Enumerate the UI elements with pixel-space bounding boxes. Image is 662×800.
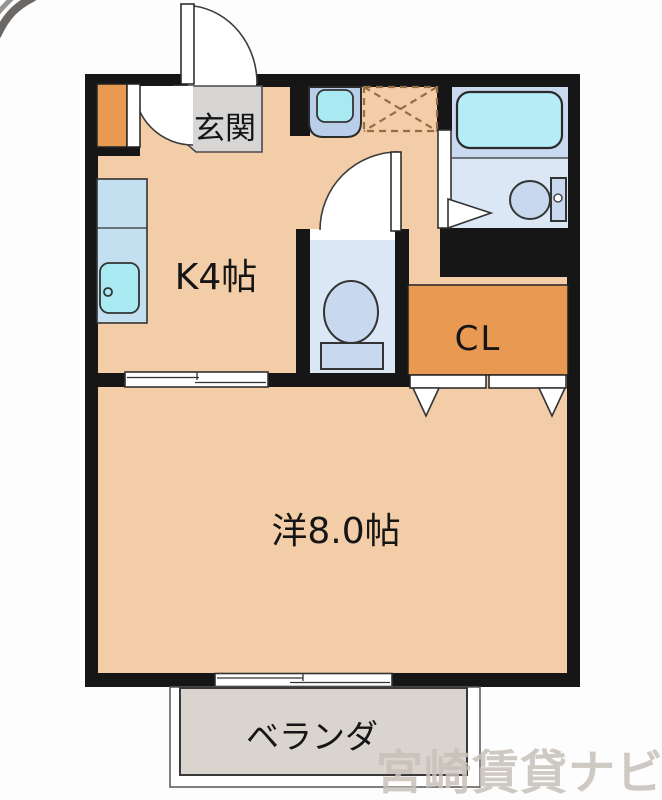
wall-right xyxy=(567,74,580,687)
closet-door-left xyxy=(410,375,486,388)
wc-threshold xyxy=(310,229,395,241)
sliding-door xyxy=(125,372,268,387)
bathtub xyxy=(457,92,562,148)
wc-toilet-tank xyxy=(321,343,383,369)
wc-door-leaf xyxy=(391,152,401,231)
entrance-label: 玄関 xyxy=(194,111,256,147)
wall-stub-entrance xyxy=(95,147,140,156)
kitchen-label: K4帖 xyxy=(175,257,258,298)
wc-toilet-bowl xyxy=(324,281,378,343)
closet-door-right xyxy=(489,375,566,388)
wall-top-right xyxy=(256,74,580,87)
wall-wc-right xyxy=(395,229,409,387)
wall-bath-left xyxy=(437,87,452,131)
shoe-cabinet xyxy=(97,84,127,147)
balcony-window xyxy=(215,674,392,687)
wall-below-bath xyxy=(440,228,580,277)
wall-stub-kitchen-nook xyxy=(290,87,310,136)
closet-label: CL xyxy=(455,319,502,359)
floorplan-image: 玄関 K4帖 xyxy=(0,0,662,800)
bath-toilet-bowl xyxy=(510,181,550,219)
wash-basin-bowl xyxy=(317,90,353,122)
wall-wc-left xyxy=(296,229,310,387)
bath-toilet-knob xyxy=(554,194,562,202)
bathroom-area xyxy=(438,87,568,228)
balcony-label: ベランダ xyxy=(246,717,378,756)
main-room-label: 洋8.0帖 xyxy=(271,511,400,552)
watermark: 宮崎賃貸ナビ xyxy=(376,746,662,800)
entrance-door-leaf xyxy=(181,4,194,84)
shoe-cabinet-side xyxy=(127,84,140,147)
kitchen-faucet xyxy=(104,288,112,296)
floorplan-svg: 玄関 K4帖 xyxy=(0,0,662,800)
